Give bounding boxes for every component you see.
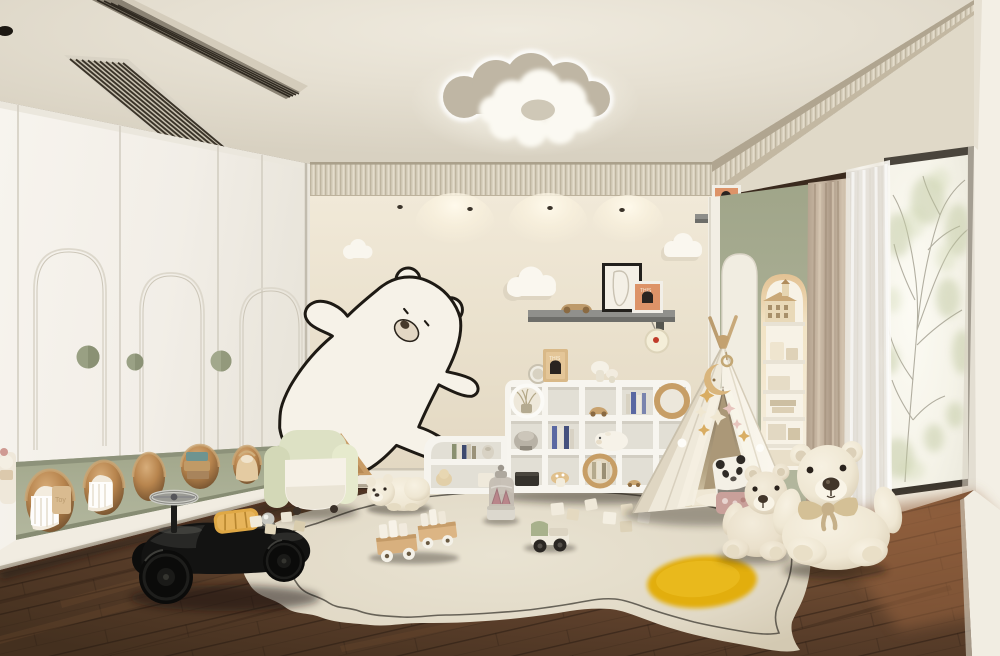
svg-text:Toy: Toy <box>55 497 66 504</box>
